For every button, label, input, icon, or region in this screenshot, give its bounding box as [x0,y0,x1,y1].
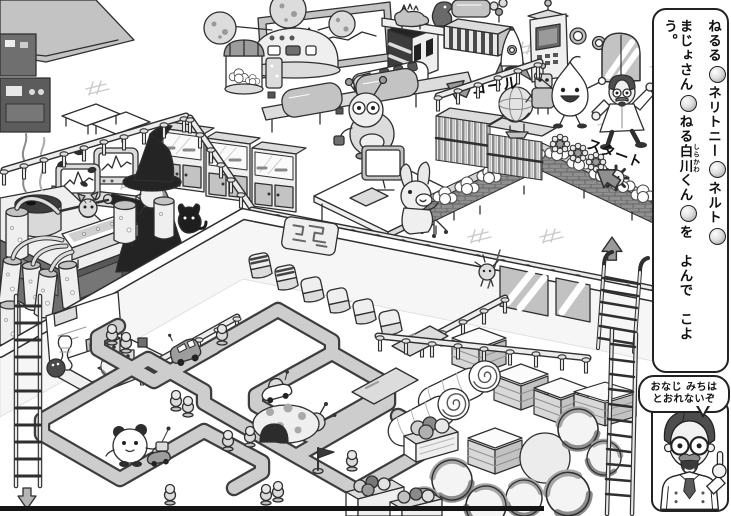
robot-terminal [528,0,568,82]
banner-text: ねるるネリトニーネルト まじょさんねる白川しらかわくんを よんで こよう。 [655,19,725,362]
hint-line-1: おなじ みちは [651,382,718,395]
tall-tank-right [114,201,136,244]
shirakawa-icon [680,205,697,222]
up-arrow [18,488,36,509]
display-cabinets [160,122,306,212]
neritonii-icon [709,161,726,178]
character-name-neruru: ねるる [705,19,721,63]
professor-character [592,75,654,150]
portholes [570,28,606,50]
vault-box [468,428,522,474]
hand [713,464,726,477]
character-name-neritonii: ネリトニー [705,86,721,159]
professor-portrait [653,401,727,510]
dinosaur-toy-rex [432,2,452,26]
professor-portrait-frame [651,399,729,512]
banner-column-right: ねるるネリトニーネルト [705,19,726,362]
majosan-icon [680,95,697,112]
factory-scene-illustration: ゴール スタート [0,0,731,516]
ball-bin [404,417,458,462]
tall-ladder-right [606,330,636,514]
cover-box [452,0,490,17]
candy-dispenser [490,0,507,22]
character-name-neruto: ネルト [705,181,721,225]
character-name-majosan: まじょさん [677,19,693,92]
puzzle-page: ゴール スタート [0,0,731,516]
page-edge-line [0,506,544,511]
mission-banner: ねるるネリトニーネルト まじょさんねる白川しらかわくんを よんで こよう。 [652,8,729,373]
neruto-icon [709,228,726,245]
neruru-icon [709,66,726,83]
character-name-shirakawa: ねる白川しらかわくん [677,115,693,203]
hint-speech-bubble: おなじ みちは とおれないぞ [638,375,730,413]
hint-line-2: とおれないぞ [653,394,716,407]
bookshelves [436,108,556,180]
banner-column-left: まじょさんねる白川しらかわくんを よんで こよう。 [660,19,699,362]
